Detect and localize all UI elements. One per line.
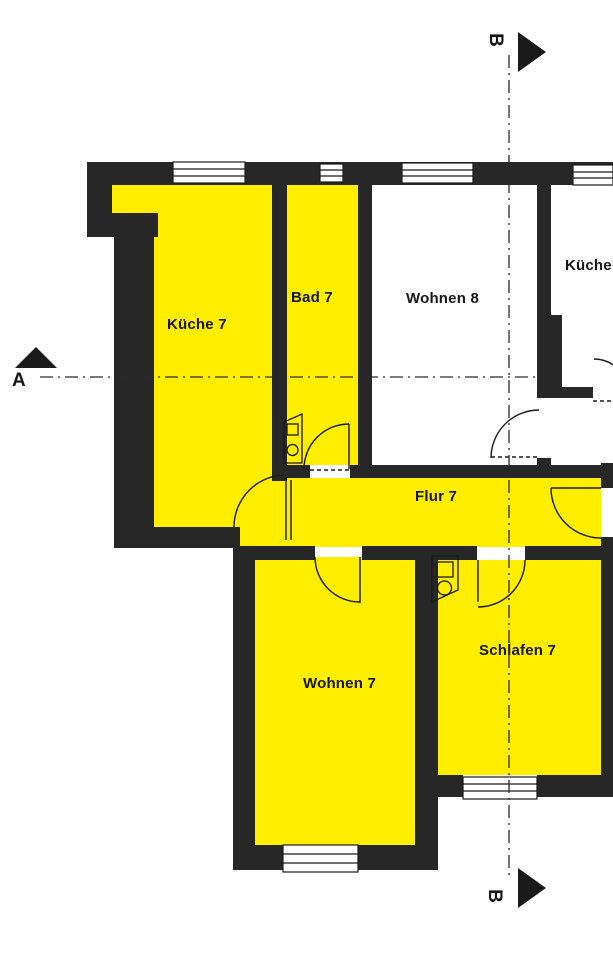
section-label-b-top: B xyxy=(484,33,506,47)
room-label-wohnen-8: Wohnen 8 xyxy=(406,290,479,307)
room-area-wohnen-7 xyxy=(255,557,415,845)
section-label-b-bottom: B xyxy=(483,889,505,903)
floor-plan-drawing xyxy=(0,0,613,960)
room-fill-layer xyxy=(112,185,601,845)
room-label-wohnen-7: Wohnen 7 xyxy=(303,675,376,692)
room-label-kueche-8: Küche xyxy=(565,257,612,274)
window-symbol xyxy=(573,165,613,185)
room-label-bad-7: Bad 7 xyxy=(291,289,333,306)
room-label-kueche-7: Küche 7 xyxy=(167,316,227,333)
window-symbol xyxy=(463,777,537,799)
room-area-bad-7 xyxy=(287,185,358,465)
window-symbol xyxy=(320,164,343,182)
section-label-a: A xyxy=(12,370,26,392)
room-area-schlafen-7 xyxy=(438,560,601,775)
section-arrow-a-icon xyxy=(15,347,57,368)
window-symbol xyxy=(173,162,245,183)
window-symbol xyxy=(283,845,358,872)
room-label-flur-7: Flur 7 xyxy=(415,488,457,505)
window-symbol xyxy=(402,163,473,183)
door-arc-wohnen-8 xyxy=(491,410,539,458)
section-arrow-b-top-icon xyxy=(518,32,546,72)
floor-plan-canvas: Küche 7 Bad 7 Wohnen 8 Küche Flur 7 Wohn… xyxy=(0,0,613,960)
room-label-schlafen-7: Schlafen 7 xyxy=(479,642,556,659)
door-arc-kueche-8 xyxy=(593,359,613,401)
section-arrow-b-bottom-icon xyxy=(518,868,546,908)
